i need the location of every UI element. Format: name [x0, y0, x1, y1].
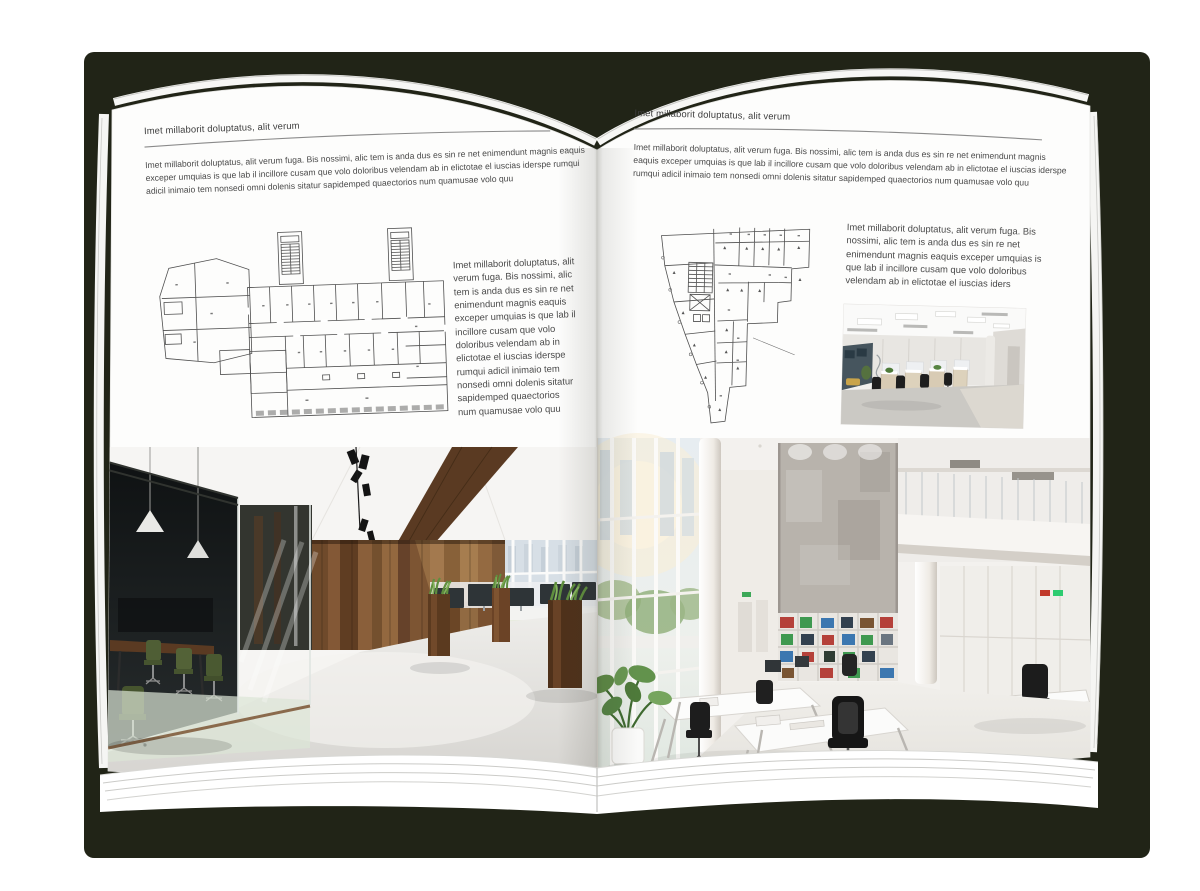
office-photo-workstations: [841, 304, 1026, 428]
bookshelf: [778, 613, 898, 681]
mezzanine-balcony: [898, 438, 1090, 566]
right-page-side-text: Imet millaborit doluptatus, alit verum f…: [845, 220, 1049, 292]
left-page-side-text: Imet millaborit doluptatus, alit verum f…: [453, 254, 581, 418]
spine-shadow: [558, 148, 638, 798]
brochure-mockup-canvas: Imet millaborit doluptatus, alit verum I…: [0, 0, 1200, 891]
concrete-wall: [778, 443, 898, 613]
office-photo-dark-loft: [108, 447, 598, 800]
cabinet-wall: [940, 566, 1090, 706]
book-mockup: Imet millaborit doluptatus, alit verum I…: [0, 0, 1200, 891]
office-photo-bright-hall: [566, 433, 1090, 800]
